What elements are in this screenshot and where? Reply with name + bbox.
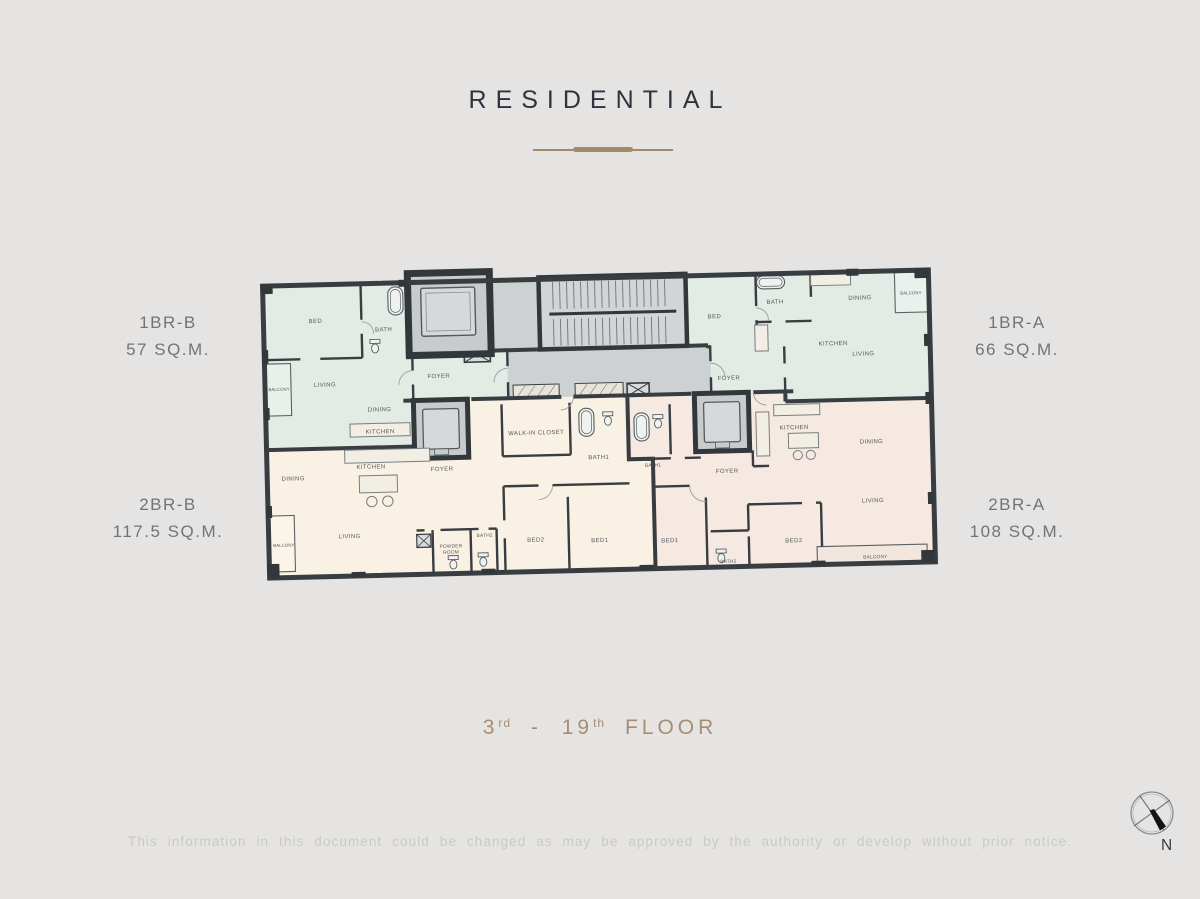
unit-area: 66 SQ.M. [927, 336, 1107, 363]
room-label-bed1-2brb: BED1 [591, 538, 609, 544]
room-label-bed1-2bra: BED1 [661, 538, 679, 544]
divider-line-right [630, 149, 673, 151]
room-label-living-1bra: LIVING [852, 351, 874, 358]
unit-label-1br-a: 1BR-A 66 SQ.M. [927, 309, 1107, 363]
floor-plan: BED BATH BALCONY LIVING DINING KITCHEN F… [254, 256, 944, 601]
stairwell [538, 274, 687, 350]
room-label-balcony-1brb: BALCONY [268, 387, 289, 393]
unit-label-1br-b: 1BR-B 57 SQ.M. [78, 309, 258, 363]
room-label-living-2bra: LIVING [862, 498, 884, 505]
divider-bar-center [573, 147, 633, 152]
room-label-dining-1brb: DINING [368, 407, 392, 414]
unit-area: 57 SQ.M. [78, 336, 258, 363]
room-label-bed-1bra: BED [708, 314, 722, 320]
unit-label-2br-a: 2BR-A 108 SQ.M. [927, 491, 1107, 545]
room-label-bed-1brb: BED [309, 319, 323, 325]
room-label-kitchen-2bra: KITCHEN [780, 425, 809, 432]
unit-area: 117.5 SQ.M. [78, 518, 258, 545]
room-label-balcony-1bra: BALCONY [900, 290, 921, 296]
room-label-bed2-2bra: BED2 [785, 538, 803, 544]
room-label-dining-2bra: DINING [860, 439, 884, 446]
room-label-bath-1brb: BATH [375, 327, 392, 333]
unit-name: 2BR-A [927, 491, 1107, 518]
unit-label-2br-b: 2BR-B 117.5 SQ.M. [78, 491, 258, 545]
divider-line-left [533, 149, 576, 151]
floor-word: FLOOR [625, 716, 717, 739]
room-label-bed2-2brb: BED2 [527, 537, 545, 543]
compass-north-label: N [1161, 837, 1172, 854]
room-label-balcony-2brb: BALCONY [273, 542, 294, 548]
floor-to-suffix: th [593, 716, 605, 730]
floor-from-suffix: rd [498, 716, 511, 730]
room-label-bath2-2bra: BATH2 [720, 559, 736, 565]
room-label-foyer-2brb: FOYER [431, 467, 454, 474]
compass: N [1118, 776, 1188, 858]
room-label-living-1brb: LIVING [314, 382, 336, 389]
room-label-kitchen-2brb: KITCHEN [356, 464, 385, 471]
page-title: RESIDENTIAL [0, 86, 1200, 115]
floor-dash: - [531, 716, 542, 739]
title-divider [533, 147, 673, 152]
unit-name: 1BR-B [78, 309, 258, 336]
room-label-bath1-2bra: BATH1 [645, 462, 661, 468]
unit-area: 108 SQ.M. [927, 518, 1107, 545]
unit-name: 1BR-A [927, 309, 1107, 336]
disclaimer-text: This information in this document could … [0, 834, 1200, 849]
room-label-dining-1bra: DINING [848, 295, 872, 302]
room-label-bath1-2brb: BATH1 [588, 455, 609, 462]
room-label-powder-room-2brb: ROOM [443, 549, 459, 555]
floor-from: 3 [483, 716, 499, 739]
room-label-bath2-2brb: BATH2 [477, 533, 493, 539]
room-label-kitchen-1brb: KITCHEN [365, 429, 394, 436]
unit-area-1br-a [682, 270, 931, 404]
room-label-kitchen-1bra: KITCHEN [818, 341, 847, 348]
room-label-bath-1bra: BATH [766, 299, 783, 305]
room-label-foyer-1brb: FOYER [427, 374, 450, 381]
room-label-dining-2brb: DINING [281, 476, 305, 483]
room-label-balcony-2bra: BALCONY [863, 554, 888, 561]
room-label-powder-2brb: POWDER [439, 543, 462, 550]
floor-to: 19 [562, 716, 593, 739]
unit-name: 2BR-B [78, 491, 258, 518]
room-label-foyer-2bra: FOYER [716, 469, 739, 476]
residential-floorplan-page: RESIDENTIAL 1BR-B 57 SQ.M. 1BR-A 66 SQ.M… [0, 0, 1200, 899]
elevator-right [694, 392, 749, 451]
room-label-foyer-1bra: FOYER [718, 376, 741, 383]
compass-needle [1150, 809, 1167, 831]
floor-range-label: 3rd - 19th FLOOR [0, 716, 1200, 740]
room-label-living-2brb: LIVING [339, 534, 361, 541]
